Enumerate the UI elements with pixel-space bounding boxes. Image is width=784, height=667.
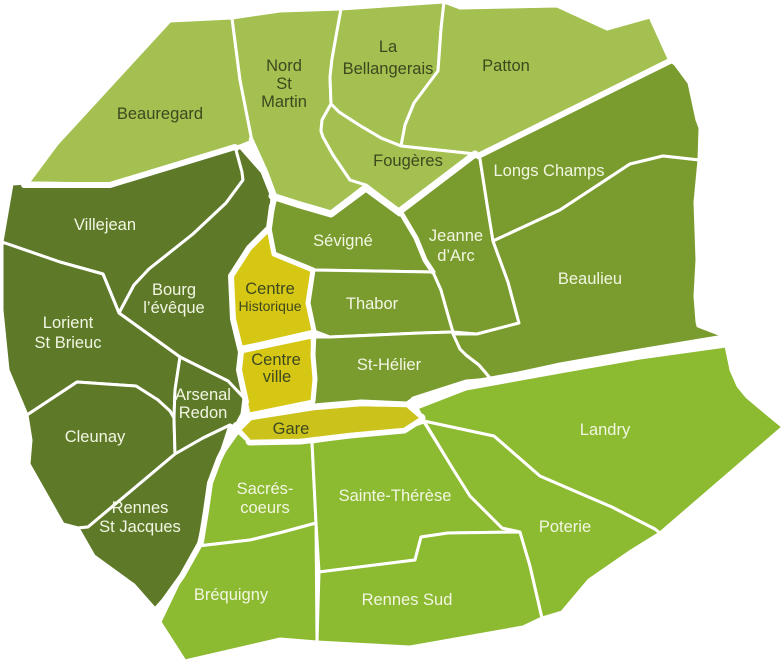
svg-text:Longs Champs: Longs Champs	[494, 162, 605, 180]
svg-text:l’évêque: l’évêque	[143, 299, 204, 317]
svg-text:Fougères: Fougères	[373, 152, 443, 170]
svg-text:St Brieuc: St Brieuc	[35, 334, 102, 352]
svg-text:Nord: Nord	[266, 57, 302, 75]
svg-text:Landry: Landry	[580, 421, 631, 439]
svg-text:Arsenal: Arsenal	[175, 386, 231, 404]
svg-text:St Jacques: St Jacques	[99, 518, 181, 536]
svg-text:Centre: Centre	[251, 351, 301, 369]
svg-text:Gare: Gare	[273, 420, 310, 438]
svg-text:Centre: Centre	[245, 280, 295, 298]
svg-text:Rennes: Rennes	[112, 499, 169, 517]
svg-text:Bréquigny: Bréquigny	[194, 586, 269, 604]
svg-text:Lorient: Lorient	[43, 314, 94, 332]
svg-text:St-Hélier: St-Hélier	[357, 356, 422, 374]
svg-text:Beaulieu: Beaulieu	[558, 270, 622, 288]
svg-text:La: La	[379, 38, 398, 56]
svg-text:ville: ville	[263, 368, 291, 386]
svg-text:Poterie: Poterie	[539, 518, 591, 536]
svg-text:Jeanne: Jeanne	[429, 227, 483, 245]
svg-text:Redon: Redon	[179, 404, 228, 422]
svg-text:d’Arc: d’Arc	[437, 247, 475, 265]
svg-text:coeurs: coeurs	[240, 499, 290, 517]
svg-text:Beauregard: Beauregard	[117, 105, 203, 123]
svg-text:Martin: Martin	[261, 93, 307, 111]
svg-text:Thabor: Thabor	[346, 295, 399, 313]
svg-text:Historique: Historique	[238, 298, 301, 314]
svg-text:Rennes Sud: Rennes Sud	[362, 591, 453, 609]
svg-text:Villejean: Villejean	[74, 216, 136, 234]
svg-text:Sévigné: Sévigné	[313, 232, 373, 250]
svg-text:St: St	[276, 75, 292, 93]
svg-text:Sacrés-: Sacrés-	[237, 480, 294, 498]
svg-text:Bellangerais: Bellangerais	[343, 60, 434, 78]
svg-text:Patton: Patton	[482, 57, 530, 75]
svg-text:Cleunay: Cleunay	[65, 428, 126, 446]
svg-text:Sainte-Thérèse: Sainte-Thérèse	[339, 487, 452, 505]
svg-text:Bourg: Bourg	[152, 281, 196, 299]
